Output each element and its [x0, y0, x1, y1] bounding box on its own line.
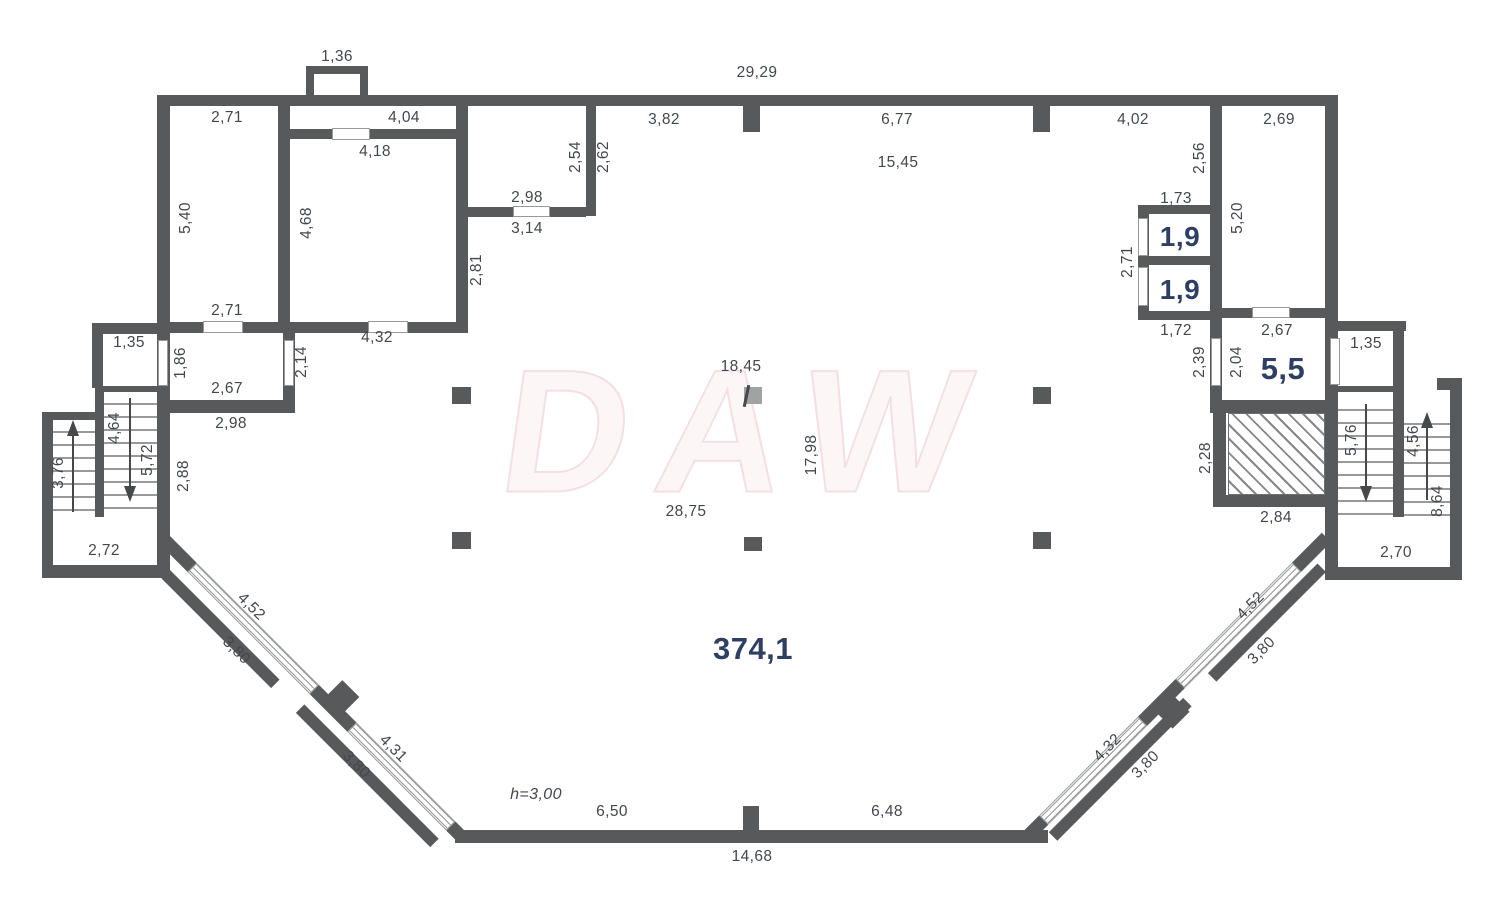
dimension-label: 6,48: [871, 803, 903, 821]
dimension-label: 14,68: [732, 848, 773, 866]
pilaster: [1033, 106, 1050, 132]
stair-mid-wall: [1393, 331, 1404, 517]
dimension-label: 4,68: [298, 207, 316, 239]
diagonal-wall-left-inner: [162, 570, 439, 847]
dimension-label: 2,98: [511, 189, 543, 207]
window: [332, 128, 370, 140]
dimension-label: 3,76: [50, 457, 68, 489]
stair-wall: [42, 565, 170, 578]
dimension-label: 5,76: [1343, 424, 1361, 456]
column: [744, 387, 762, 404]
area-label: 1,9: [1160, 274, 1200, 306]
column: [452, 387, 471, 404]
dimension-label: 2,28: [1197, 442, 1215, 474]
wall-niche-bottom: [468, 207, 513, 217]
dimension-label: 5,40: [177, 202, 195, 234]
stair-wall-outer: [42, 412, 53, 578]
stair-wall-outer: [1450, 385, 1462, 580]
dimension-label: 2,71: [211, 302, 243, 320]
window: [1138, 267, 1148, 306]
dimension-label: 2,71: [1119, 246, 1137, 278]
floor-plan: DAW: [0, 0, 1500, 916]
column: [744, 537, 762, 551]
stair-wall: [1338, 386, 1393, 392]
dimension-label: 2,56: [1191, 142, 1209, 174]
dimension-label: 2,67: [211, 380, 243, 398]
dimension-label: 2,62: [595, 141, 613, 173]
wall: [1049, 698, 1192, 841]
window-band: [188, 563, 320, 695]
dimension-label: 4,32: [361, 329, 393, 347]
column: [1033, 532, 1051, 549]
dimension-label: 2,69: [1263, 111, 1295, 129]
dimension-label: 1,86: [172, 347, 190, 379]
area-label: 374,1: [713, 631, 793, 667]
wall-niche-bottom: [550, 207, 586, 217]
wall: [243, 322, 368, 333]
wall: [1210, 400, 1338, 413]
window: [513, 206, 550, 217]
dimension-label: 2,04: [1228, 346, 1246, 378]
diagonal-wall-left-outer: [158, 533, 464, 839]
dimension-label: 2,67: [1261, 322, 1293, 340]
wall-bottom: [455, 830, 1048, 843]
window-band: [1175, 563, 1301, 689]
door-opening: [1211, 338, 1221, 386]
door-opening: [1330, 338, 1340, 385]
dimension-label: 2,70: [1380, 544, 1412, 562]
top-protrusion: [360, 66, 368, 95]
column: [452, 532, 471, 549]
dimension-label: 1,35: [113, 334, 145, 352]
window: [203, 321, 243, 333]
dimension-label: 17,98: [803, 435, 821, 476]
window: [1138, 218, 1148, 256]
wall: [1290, 308, 1325, 318]
top-protrusion: [306, 66, 314, 95]
wall: [408, 322, 468, 333]
pilaster: [743, 106, 760, 132]
dimension-label: 3,82: [648, 111, 680, 129]
dimension-label: 29,29: [737, 64, 778, 82]
wall: [157, 400, 295, 413]
stair-wall: [92, 323, 170, 334]
column: [1033, 387, 1051, 404]
dimension-label: 2,88: [175, 460, 193, 492]
dimension-label: 2,39: [1191, 346, 1209, 378]
dimension-label: 4,56: [1405, 425, 1423, 457]
diagonal-wall-right-inner: [1049, 564, 1326, 841]
dimension-label: 2,14: [293, 346, 311, 378]
wall: [1222, 308, 1252, 318]
dimension-label: 2,72: [88, 542, 120, 560]
wall: [1208, 564, 1326, 682]
dimension-label: 2,71: [211, 109, 243, 127]
wall-left: [157, 95, 170, 578]
wall-corridor: [370, 129, 468, 139]
dimension-label: 28,75: [666, 503, 707, 521]
wall-room-divider: [278, 106, 290, 333]
dimension-label: 1,72: [1160, 322, 1192, 340]
stair-wall: [92, 323, 103, 388]
wall-top: [157, 95, 1338, 106]
dimension-label: 6,50: [596, 803, 628, 821]
dimension-label: 2,98: [215, 415, 247, 433]
dimension-label: 5,72: [139, 444, 157, 476]
stair-wall: [1325, 567, 1462, 580]
wall-room-divider: [456, 106, 468, 333]
column-slash: [743, 385, 751, 407]
dimension-label: 1,36: [321, 48, 353, 66]
top-protrusion: [306, 66, 368, 74]
wall-shaft: [1213, 495, 1338, 507]
stair-mid-wall: [95, 386, 104, 517]
area-label: 5,5: [1261, 351, 1306, 387]
area-label: 1,9: [1160, 221, 1200, 253]
window: [1252, 307, 1290, 318]
hatched-shaft: [1228, 413, 1325, 495]
dimension-label: 6,77: [881, 111, 913, 129]
dimension-label: 2,54: [567, 141, 585, 173]
dimension-label: 1,35: [1350, 335, 1382, 353]
door-opening: [158, 340, 168, 386]
dimension-label: 2,84: [1260, 509, 1292, 527]
dimension-label: 18,45: [721, 358, 762, 376]
dimension-label: 4,04: [388, 109, 420, 127]
dimension-label: 15,45: [878, 154, 919, 172]
wall: [170, 322, 203, 333]
dimension-label: 4,02: [1117, 111, 1149, 129]
height-note: h=3,00: [510, 786, 562, 804]
dimension-label: 4,64: [106, 412, 124, 444]
wall-corridor: [290, 129, 332, 139]
dimension-label: 3,14: [511, 220, 543, 238]
stair-wall: [1338, 321, 1406, 331]
dimension-label: 5,20: [1229, 202, 1247, 234]
dimension-label: 1,73: [1160, 190, 1192, 208]
diagonal-wall-right-outer: [1025, 533, 1331, 839]
dimension-label: 4,18: [359, 143, 391, 161]
dimension-label: 8,64: [1429, 485, 1447, 517]
pilaster: [743, 806, 759, 830]
dimension-label: 2,81: [468, 254, 486, 286]
